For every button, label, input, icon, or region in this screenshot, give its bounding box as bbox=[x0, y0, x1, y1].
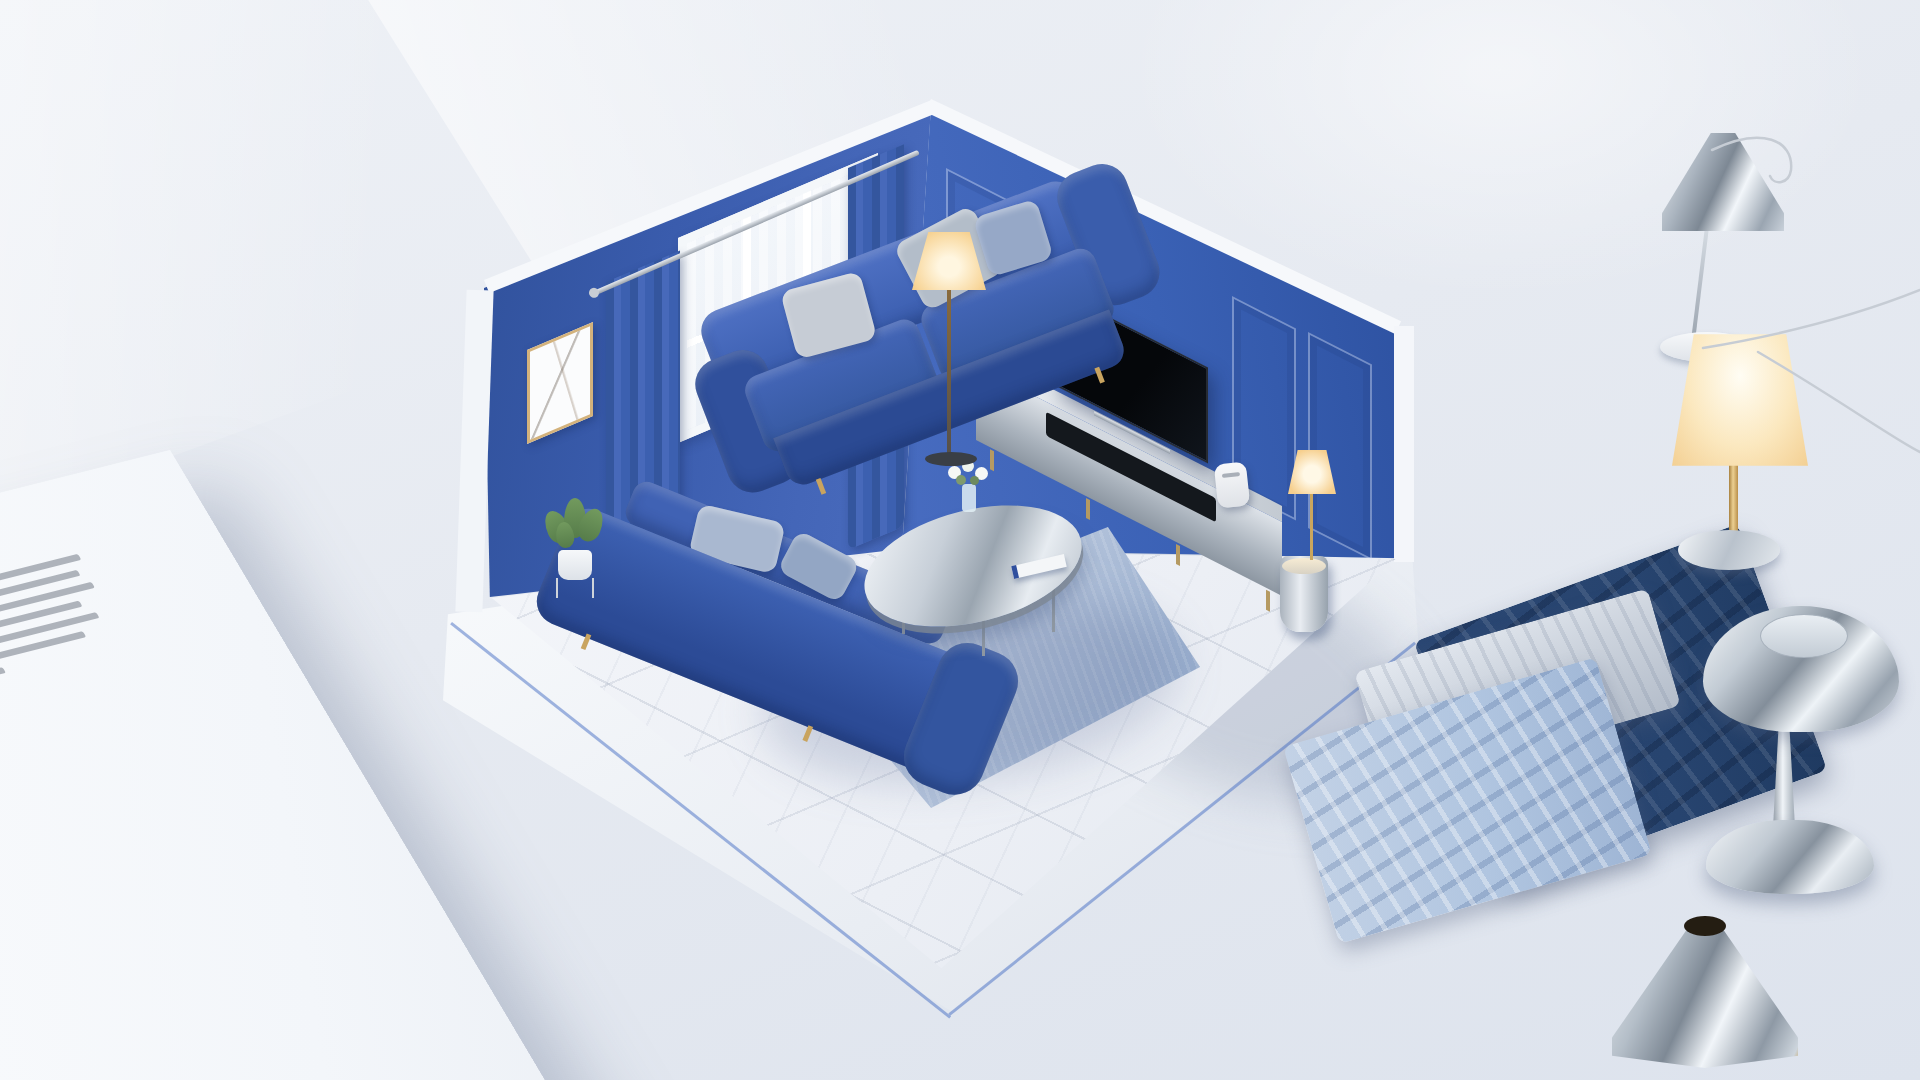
power-cord bbox=[1703, 290, 1920, 348]
power-cord bbox=[1758, 352, 1920, 452]
render-canvas bbox=[0, 0, 1920, 1080]
lamp-arm-wire bbox=[1712, 138, 1791, 182]
power-cords bbox=[0, 0, 1920, 1080]
